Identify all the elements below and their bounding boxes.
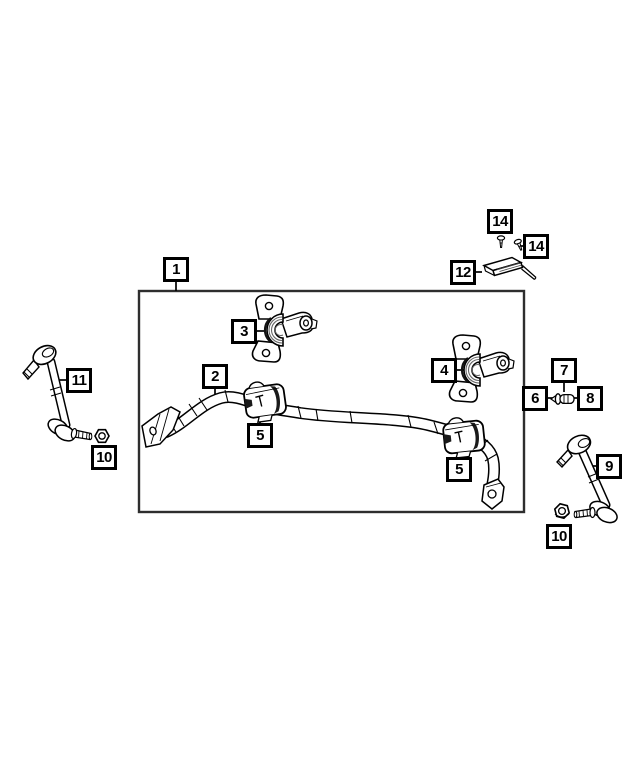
screw-left-drawing (497, 236, 504, 248)
callout-6[interactable]: 6 (522, 386, 548, 411)
callout-1[interactable]: 1 (163, 257, 189, 282)
callout-2[interactable]: 2 (202, 364, 228, 389)
nut-left-drawing (95, 430, 109, 443)
bushing-bracket-left-drawing (252, 295, 317, 362)
callout-9[interactable]: 9 (596, 454, 622, 479)
callout-10a[interactable]: 10 (91, 445, 117, 470)
bar-left-flange (142, 407, 180, 447)
callout-5a[interactable]: 5 (247, 423, 273, 448)
callout-8[interactable]: 8 (577, 386, 603, 411)
callout-5b[interactable]: 5 (446, 457, 472, 482)
retainer-plate-drawing (484, 258, 536, 280)
callout-3[interactable]: 3 (231, 319, 257, 344)
callout-4[interactable]: 4 (431, 358, 457, 383)
nut-right-drawing (555, 504, 569, 518)
bushing-clamp-right-drawing (442, 415, 486, 459)
bolt-drawing (551, 394, 574, 404)
callout-14b[interactable]: 14 (523, 234, 549, 259)
callout-7[interactable]: 7 (551, 358, 577, 383)
callout-14a[interactable]: 14 (487, 209, 513, 234)
bushing-clamp-left-drawing (242, 379, 287, 424)
bushing-bracket-right-drawing (449, 335, 514, 402)
callout-10b[interactable]: 10 (546, 524, 572, 549)
parts-diagram: 1 2 3 4 5 5 6 7 8 9 10 10 11 12 14 14 (0, 0, 640, 777)
callout-12[interactable]: 12 (450, 260, 476, 285)
callout-11[interactable]: 11 (66, 368, 92, 393)
